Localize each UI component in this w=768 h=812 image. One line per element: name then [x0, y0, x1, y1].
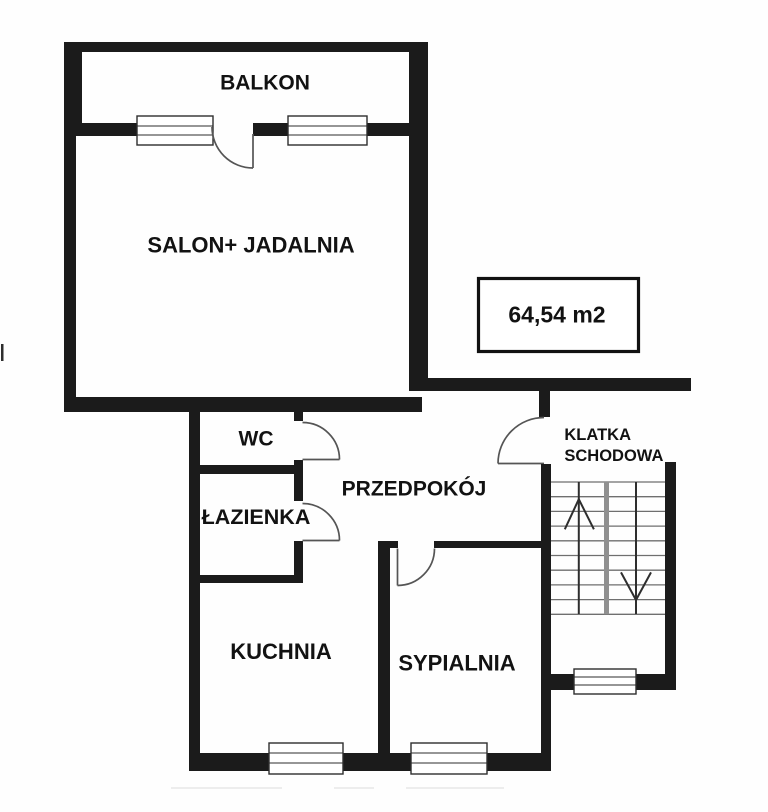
svg-text:ŁAZIENKA: ŁAZIENKA — [202, 505, 311, 529]
svg-text:64,54 m2: 64,54 m2 — [508, 302, 605, 328]
svg-text:SALON+ JADALNIA: SALON+ JADALNIA — [147, 233, 354, 258]
svg-text:SYPIALNIA: SYPIALNIA — [398, 651, 515, 676]
svg-text:PRZEDPOKÓJ: PRZEDPOKÓJ — [342, 477, 487, 501]
svg-text:WC: WC — [239, 427, 274, 450]
svg-text:KLATKA: KLATKA — [564, 426, 631, 444]
svg-text:BALKON: BALKON — [220, 72, 310, 95]
svg-text:KUCHNIA: KUCHNIA — [230, 639, 332, 664]
svg-text:SCHODOWA: SCHODOWA — [564, 447, 663, 465]
